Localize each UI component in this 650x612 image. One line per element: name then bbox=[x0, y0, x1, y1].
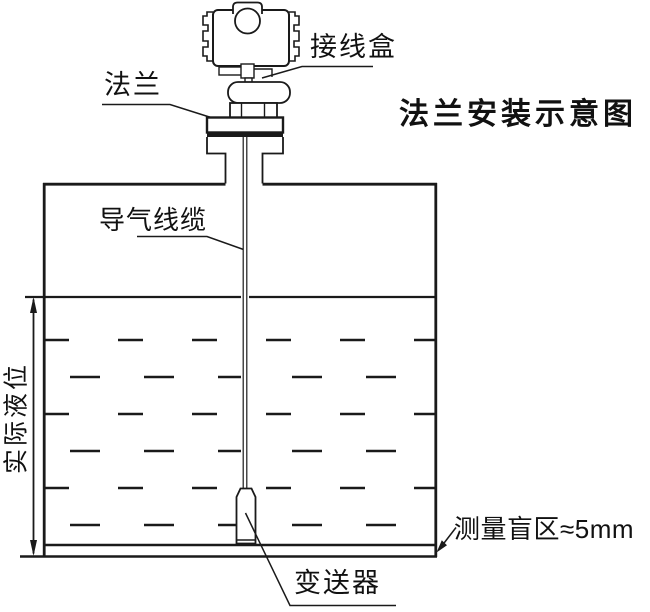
housing-left-cap-icon bbox=[203, 12, 213, 61]
diagram-title: 法兰安装示意图 bbox=[399, 100, 637, 130]
process-body bbox=[228, 82, 290, 103]
air-cable-label: 导气线缆 bbox=[99, 207, 207, 233]
sight-glass-icon bbox=[235, 9, 260, 34]
housing-right-cap-icon bbox=[289, 12, 299, 61]
level-dimension-arrow bbox=[30, 297, 37, 556]
probe-body bbox=[237, 489, 256, 544]
air-cable-leader-line bbox=[137, 237, 244, 250]
tank-outline bbox=[20, 183, 437, 557]
guide-cable bbox=[241, 137, 249, 489]
dimension-arrowhead-down-icon bbox=[30, 540, 37, 556]
flange-leader-line bbox=[102, 105, 211, 118]
flange-plate bbox=[207, 118, 283, 133]
mounting-neck-left bbox=[207, 137, 226, 184]
diagram-canvas: 接线盒 法兰 法兰安装示意图 导气线缆 实际液位 测量盲区≈5mm 变送器 bbox=[0, 0, 650, 612]
flange-gasket bbox=[207, 134, 283, 138]
hex-nut-icon bbox=[230, 103, 277, 118]
mounting-neck-right bbox=[263, 137, 284, 184]
conduit-block bbox=[241, 64, 254, 78]
dimension-arrowhead-up-icon bbox=[30, 297, 37, 313]
flange-label: 法兰 bbox=[104, 72, 162, 99]
transmitter-label: 变送器 bbox=[294, 570, 381, 597]
actual-level-label: 实际液位 bbox=[5, 362, 30, 474]
blind-zone-label: 测量盲区≈5mm bbox=[454, 516, 634, 542]
junction-box-label: 接线盒 bbox=[310, 34, 397, 61]
liquid bbox=[25, 297, 436, 525]
junction-box-leader-line bbox=[262, 67, 373, 79]
transmitter-head bbox=[203, 3, 299, 119]
probe-weight bbox=[237, 489, 256, 544]
